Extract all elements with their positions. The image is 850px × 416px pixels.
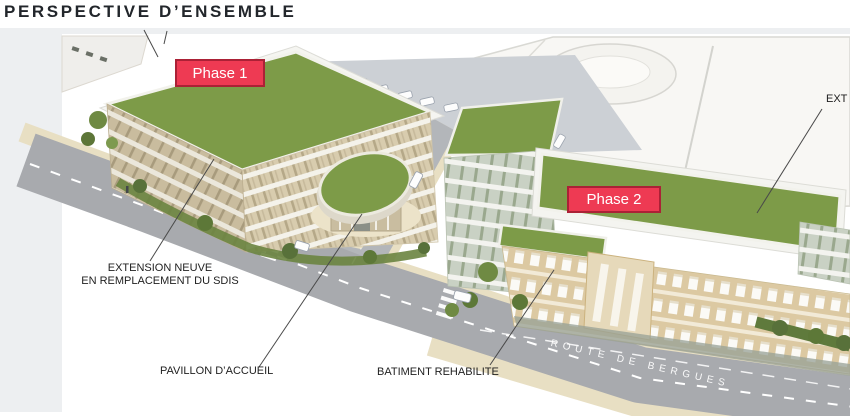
phase-2-tag: Phase 2 (567, 186, 661, 213)
pedestrian (126, 186, 129, 193)
page-title: PERSPECTIVE D’ENSEMBLE (4, 2, 296, 22)
phase-2-tag-label: Phase 2 (586, 191, 641, 208)
ext-truncated-note: EXT (826, 93, 847, 106)
phase-2-right-wing (798, 222, 850, 284)
architectural-rendering (0, 0, 850, 416)
batiment-note: BATIMENT REHABILITE (377, 366, 499, 379)
extension-note: EXTENSION NEUVE EN REMPLACEMENT DU SDIS (62, 262, 258, 288)
phase-2-roof-arm (446, 99, 562, 155)
extension-note-line1: EXTENSION NEUVE (62, 262, 258, 275)
phase-1-tag-label: Phase 1 (192, 65, 247, 82)
slide: PERSPECTIVE D’ENSEMBLE Phase 1 Phase 2 E… (0, 0, 850, 416)
phase-1-tag: Phase 1 (175, 59, 265, 87)
extension-note-line2: EN REMPLACEMENT DU SDIS (62, 275, 258, 288)
pavillon-note: PAVILLON D’ACCUEIL (160, 365, 273, 378)
